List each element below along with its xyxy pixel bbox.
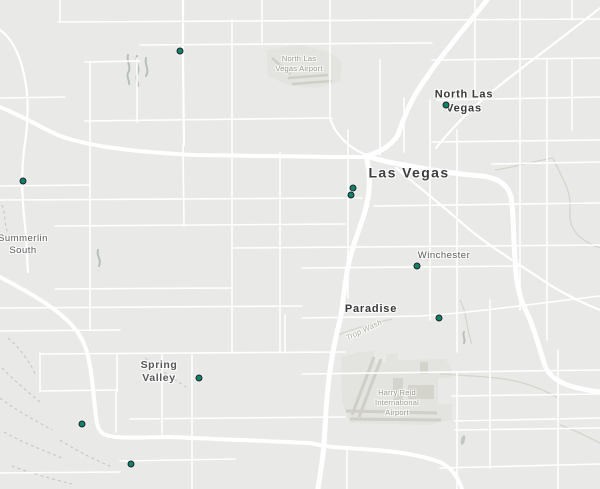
map-marker-marker-7[interactable] (436, 315, 443, 322)
map-marker-marker-5[interactable] (348, 192, 355, 199)
map-marker-marker-3[interactable] (20, 178, 27, 185)
map-marker-marker-6[interactable] (414, 263, 421, 270)
map-base (0, 0, 600, 489)
map-marker-marker-10[interactable] (128, 461, 135, 468)
map-marker-marker-9[interactable] (79, 421, 86, 428)
map-marker-marker-2[interactable] (443, 102, 450, 109)
harry-reid-airport-area (341, 351, 452, 425)
map-marker-marker-8[interactable] (196, 375, 203, 382)
map-viewport[interactable]: North Las Vegas AirportNorth Las VegasLa… (0, 0, 600, 489)
map-marker-marker-1[interactable] (177, 48, 184, 55)
map-marker-marker-4[interactable] (350, 185, 357, 192)
